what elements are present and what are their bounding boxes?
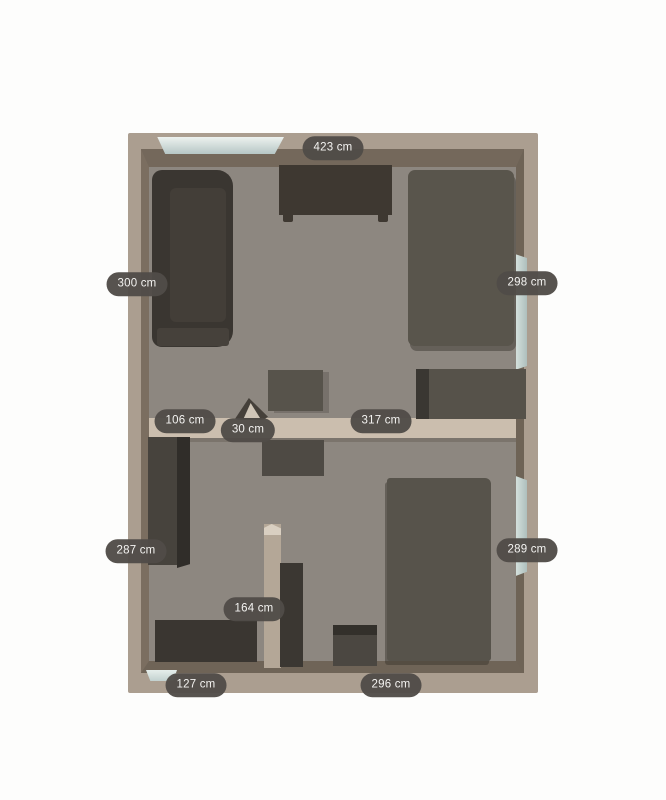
dimension-label: 289 cm [497,538,558,562]
middle-wall-shadow [149,438,516,442]
dimension-label: 300 cm [107,272,168,296]
dimension-label: 127 cm [166,673,227,697]
floorplan-app: 423 cm300 cm298 cm106 cm30 cm317 cm287 c… [0,0,666,800]
side-table-upper[interactable] [268,370,323,411]
partition-wall[interactable] [264,524,281,668]
window-right-lower[interactable] [516,474,527,578]
dimension-label: 296 cm [361,673,422,697]
dresser-right-wall[interactable] [416,369,526,419]
dresser-bottom-left-room[interactable] [155,620,257,662]
desk-foot-right [378,215,388,222]
bed-upper-room[interactable] [408,170,514,346]
side-table-lower[interactable] [262,440,324,476]
dimension-label: 287 cm [106,539,167,563]
dimension-label: 106 cm [155,409,216,433]
tall-cabinet-partition[interactable] [280,563,303,667]
sofa-front-edge [157,328,229,346]
dimension-label: 423 cm [303,136,364,160]
desk-foot-left [283,215,293,222]
stool-top-edge [333,625,377,635]
wardrobe-left-side-face [177,437,190,568]
sofa-seat-cushion [170,188,226,322]
desk-top-wall[interactable] [279,165,392,215]
dimension-label: 30 cm [221,418,275,442]
dimension-label: 317 cm [351,409,412,433]
window-right-upper[interactable] [516,252,527,372]
dresser-right-side-face [416,369,429,419]
dimension-label: 164 cm [224,597,285,621]
window-top[interactable] [152,137,284,154]
floorplan-canvas: 423 cm300 cm298 cm106 cm30 cm317 cm287 c… [0,0,666,800]
bed-lower-room[interactable] [387,478,491,661]
dimension-label: 298 cm [497,271,558,295]
